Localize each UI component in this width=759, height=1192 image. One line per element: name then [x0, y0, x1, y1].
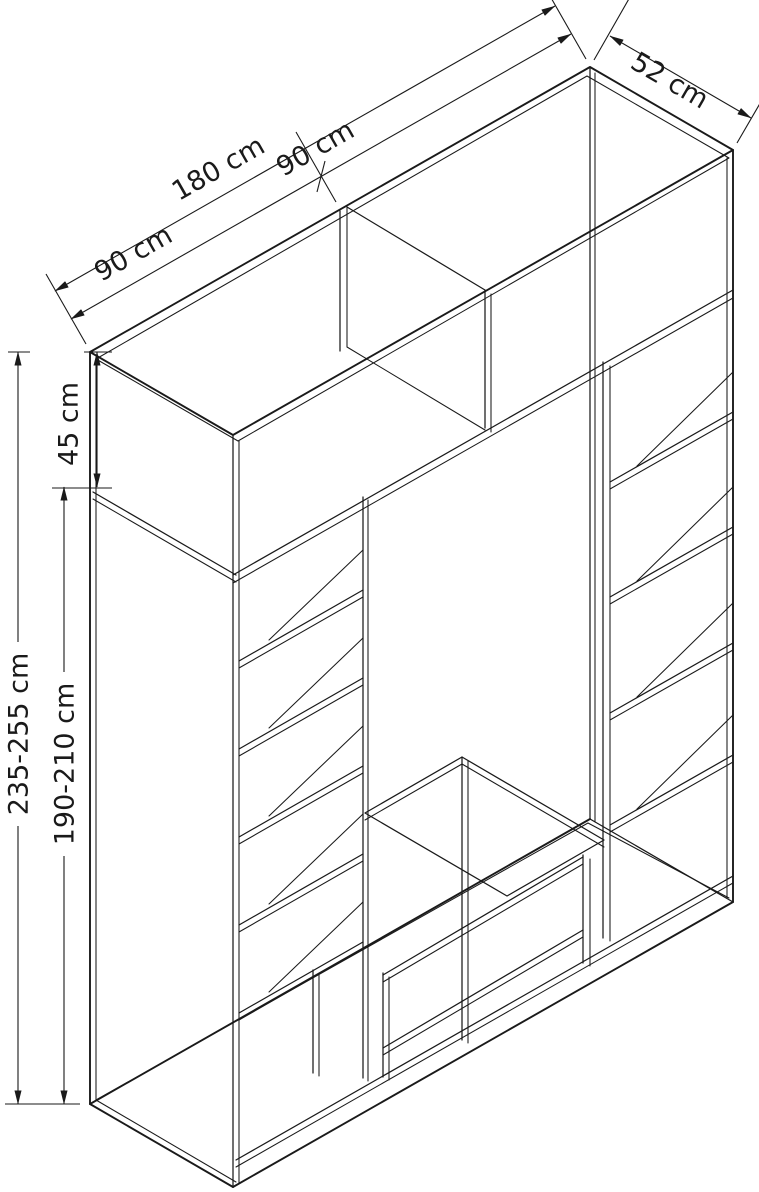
- middle-tick: [317, 161, 325, 192]
- base-plinth: [90, 819, 733, 1187]
- top-cabinet-divider: [340, 207, 491, 432]
- diagram-page: 180 cm 90 cm 90 cm 52 cm 45 cm 190-210 c…: [0, 0, 759, 1192]
- wardrobe-dimension-diagram: 180 cm 90 cm 90 cm 52 cm 45 cm 190-210 c…: [0, 0, 759, 1192]
- bottom-right-edge: [590, 819, 733, 902]
- label-width-right-half: 90 cm: [271, 115, 359, 184]
- middle-floor-shelf: [365, 757, 604, 896]
- left-column-shelves: [239, 550, 363, 1020]
- wardrobe-carcass: [90, 67, 733, 1187]
- label-height-main: 190-210 cm: [48, 672, 80, 856]
- label-width-total: 180 cm: [167, 130, 270, 207]
- right-column-shelves: [610, 372, 733, 832]
- shelf-front-edge: [239, 590, 363, 1013]
- width-right-half-text: 90 cm: [271, 115, 359, 184]
- width-total-text: 180 cm: [167, 130, 270, 207]
- height-total-text: 235-255 cm: [3, 653, 34, 816]
- shelf-front-edge-lower: [239, 597, 363, 1020]
- shelf-depth-edge: [637, 372, 733, 809]
- top-cabinet-height-text: 45 cm: [53, 382, 84, 466]
- dimension-width: 180 cm 90 cm 90 cm 52 cm: [46, 0, 759, 344]
- top-face: [90, 67, 733, 435]
- depth-text: 52 cm: [625, 46, 713, 115]
- bottom-left-edge: [90, 1104, 233, 1187]
- label-top-cabinet-height: 45 cm: [53, 382, 84, 466]
- shelf-front-edge-lower: [610, 419, 733, 832]
- plinth-top-edge: [236, 876, 733, 1160]
- drawer-top-edge: [383, 857, 583, 975]
- label-height-total: 235-255 cm: [2, 642, 34, 826]
- label-depth: 52 cm: [625, 46, 713, 115]
- shelf-front-edge: [610, 412, 733, 825]
- label-width-left-half: 90 cm: [89, 220, 177, 289]
- top-cabinet-bottom-panel: [93, 290, 733, 583]
- height-main-text: 190-210 cm: [49, 683, 80, 846]
- width-left-half-text: 90 cm: [89, 220, 177, 289]
- drawer-stack: [313, 855, 590, 1080]
- drawer-gap-edge: [383, 930, 583, 1048]
- bottom-back-edge: [233, 902, 733, 1187]
